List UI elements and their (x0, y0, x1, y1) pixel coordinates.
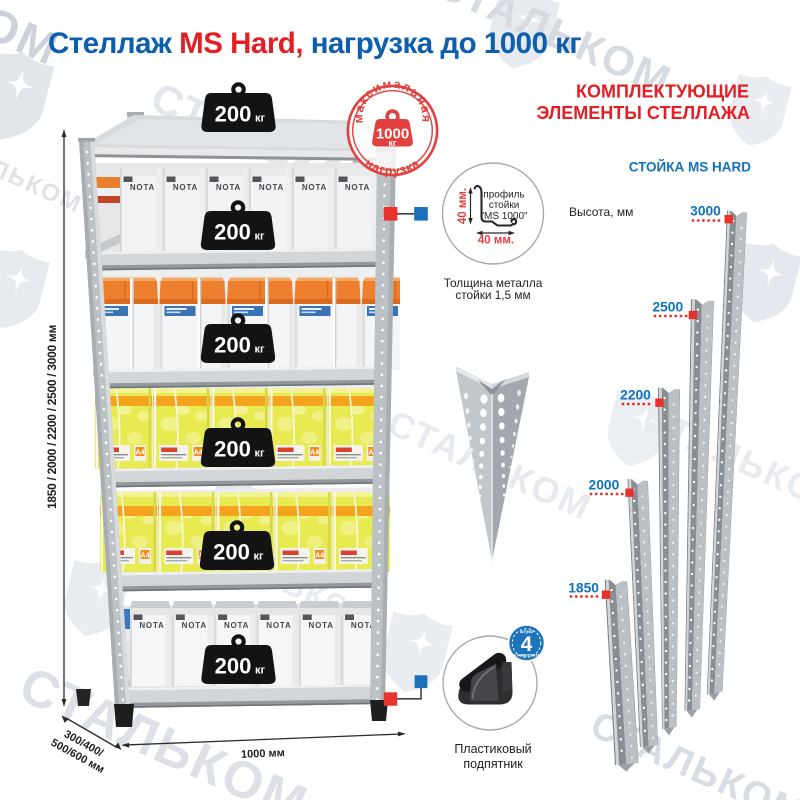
svg-text:Стеллаж MS Hard, нагрузка до 1: Стеллаж MS Hard, нагрузка до 1000 кг (48, 27, 581, 60)
svg-text:Пластиковый: Пластиковый (454, 742, 531, 756)
svg-text:в комплекте: в комплекте (513, 653, 540, 658)
svg-text:A4: A4 (310, 450, 319, 457)
svg-text:ЭЛЕМЕНТЫ СТЕЛЛАЖА: ЭЛЕМЕНТЫ СТЕЛЛАЖА (537, 103, 750, 123)
svg-text:2500: 2500 (652, 300, 683, 315)
svg-text:Высота, мм: Высота, мм (569, 205, 633, 219)
svg-text:A4: A4 (141, 553, 150, 560)
svg-text:профиль: профиль (483, 189, 524, 201)
svg-text:NOTA: NOTA (173, 183, 198, 192)
svg-text:стойки: стойки (489, 200, 520, 211)
svg-text:1850: 1850 (568, 581, 599, 596)
svg-text:NOTA: NOTA (266, 621, 291, 630)
svg-text:40 мм.: 40 мм. (457, 188, 469, 224)
svg-text:NOTA: NOTA (345, 183, 370, 192)
svg-text:A4: A4 (136, 450, 145, 457)
svg-text:штуки: штуки (520, 629, 534, 634)
svg-text:КОМПЛЕКТУЮЩИЕ: КОМПЛЕКТУЮЩИЕ (576, 82, 749, 102)
svg-text:NOTA: NOTA (302, 183, 327, 192)
svg-text:1850 / 2000 / 2200 / 2500 / 30: 1850 / 2000 / 2200 / 2500 / 3000 мм (45, 325, 59, 509)
svg-text:"MS 1000": "MS 1000" (480, 211, 528, 222)
svg-text:подпятник: подпятник (463, 757, 523, 771)
svg-text:2000: 2000 (589, 478, 620, 493)
svg-text:стойки 1,5 мм: стойки 1,5 мм (455, 288, 530, 302)
svg-text:кг: кг (388, 138, 397, 148)
svg-text:NOTA: NOTA (259, 183, 284, 192)
svg-text:NOTA: NOTA (216, 183, 241, 192)
svg-text:NOTA: NOTA (309, 621, 334, 630)
svg-text:NOTA: NOTA (139, 621, 164, 630)
svg-text:3000: 3000 (690, 204, 721, 219)
svg-text:СТОЙКА MS HARD: СТОЙКА MS HARD (629, 160, 752, 175)
svg-text:1000 мм: 1000 мм (241, 747, 285, 761)
svg-text:A4: A4 (194, 450, 203, 457)
svg-text:2200: 2200 (620, 388, 651, 403)
svg-text:A4: A4 (315, 553, 324, 560)
svg-text:NOTA: NOTA (224, 621, 249, 630)
svg-text:NOTA: NOTA (130, 183, 155, 192)
svg-text:40 мм.: 40 мм. (478, 235, 514, 247)
svg-text:NOTA: NOTA (182, 621, 207, 630)
